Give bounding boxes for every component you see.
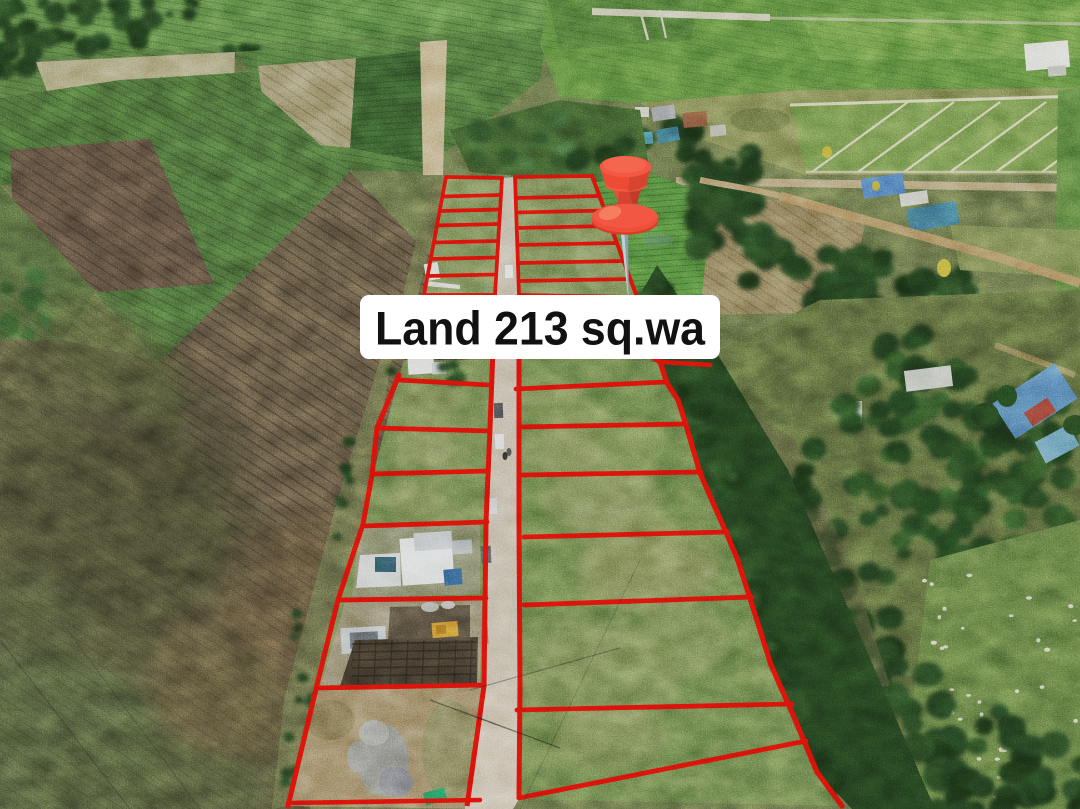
svg-text:Land 213 sq.wa: Land 213 sq.wa (375, 303, 706, 356)
